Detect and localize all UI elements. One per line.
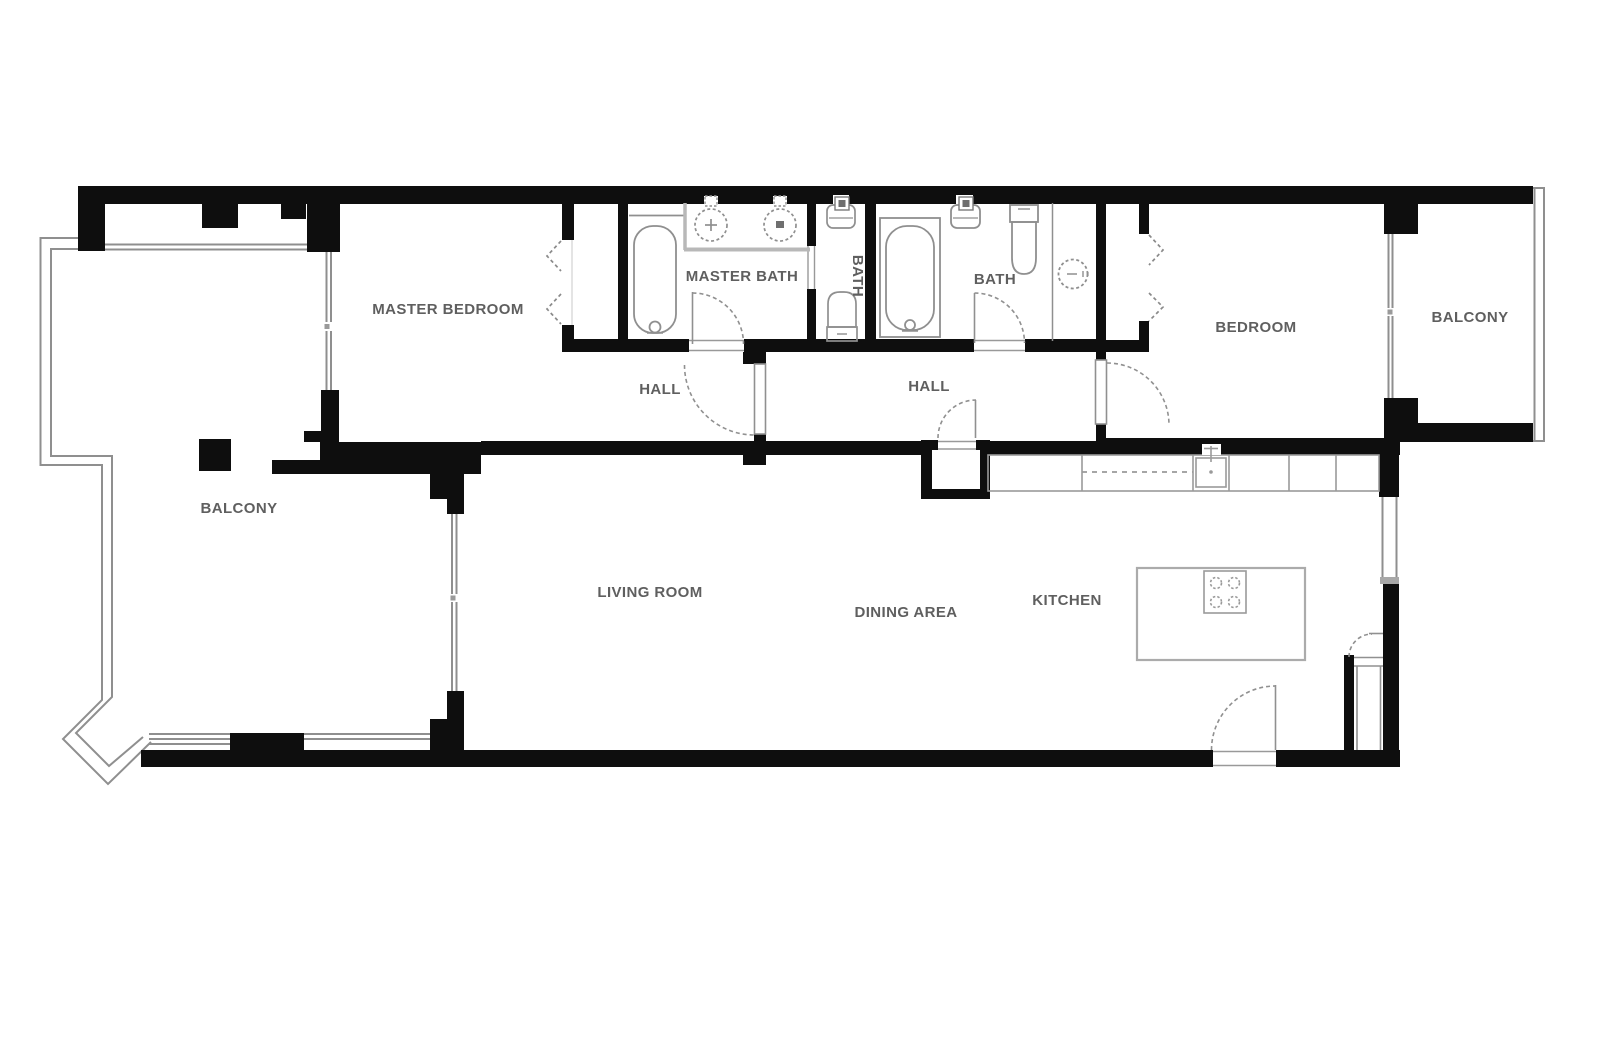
svg-text:KITCHEN: KITCHEN [1032, 592, 1101, 609]
svg-text:BEDROOM: BEDROOM [1215, 319, 1296, 336]
svg-text:MASTER BEDROOM: MASTER BEDROOM [372, 301, 523, 318]
svg-text:BALCONY: BALCONY [201, 500, 278, 517]
svg-text:HALL: HALL [639, 381, 681, 398]
svg-text:BALCONY: BALCONY [1432, 309, 1509, 326]
svg-text:MASTER BATH: MASTER BATH [686, 268, 798, 285]
svg-text:HALL: HALL [908, 378, 950, 395]
svg-text:LIVING ROOM: LIVING ROOM [597, 584, 702, 601]
svg-text:BATH: BATH [974, 271, 1016, 288]
svg-text:BATH: BATH [849, 255, 866, 297]
svg-text:DINING AREA: DINING AREA [854, 604, 957, 621]
